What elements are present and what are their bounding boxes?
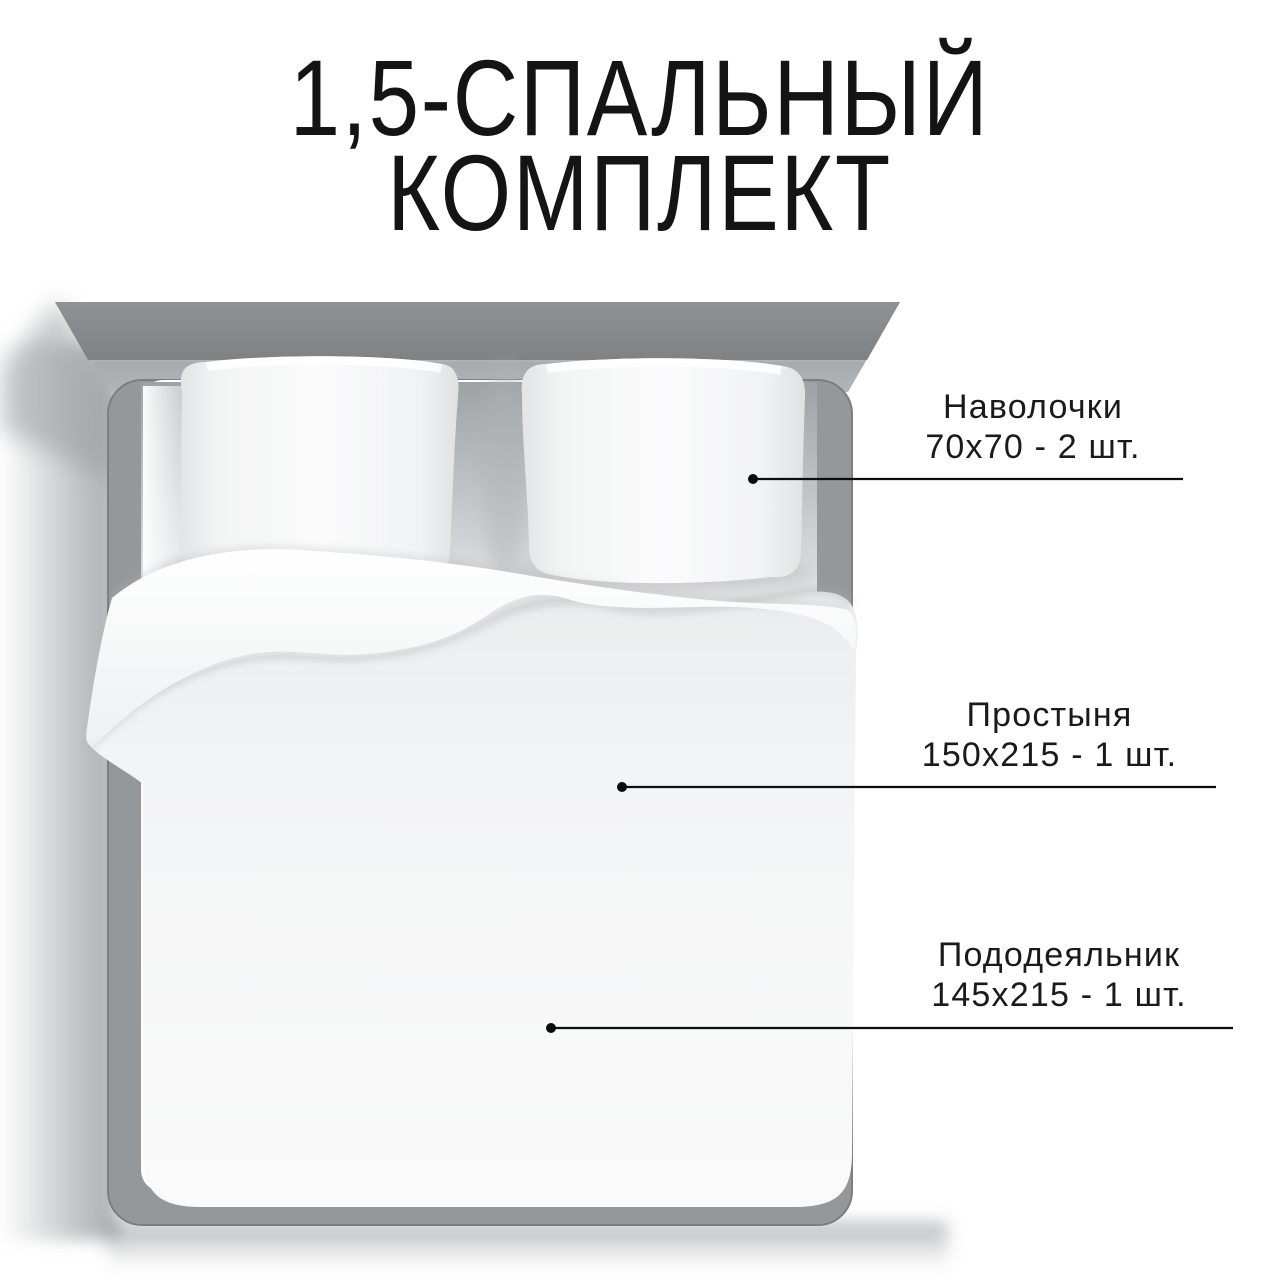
callout-label-pillowcase: Наволочки 70х70 - 2 шт. [883,387,1183,467]
callout-dot-sheet [617,782,627,792]
pillow-right [522,358,805,583]
callout-item-size: 150х215 - 1 шт. [883,735,1216,775]
callout-label-duvet: Пододеяльник 145х215 - 1 шт. [885,935,1233,1015]
duvet [90,592,858,1207]
callout-label-sheet: Простыня 150х215 - 1 шт. [883,695,1216,775]
callout-item-name: Пододеяльник [885,935,1233,975]
infographic-canvas: 1,5-СПАЛЬНЫЙ КОМПЛЕКТ [0,0,1280,1280]
callout-item-name: Наволочки [883,387,1183,427]
shadow-bottom [108,1222,948,1268]
callout-dot-pillowcase [748,474,758,484]
callout-item-size: 70х70 - 2 шт. [883,427,1183,467]
callout-item-size: 145х215 - 1 шт. [885,975,1233,1015]
pillow-gap-shadow [483,358,527,582]
callout-dot-duvet [546,1023,556,1033]
bed-illustration [0,0,1280,1280]
headboard-top [55,302,900,360]
shadow-left [0,345,118,1240]
callout-item-name: Простыня [883,695,1216,735]
